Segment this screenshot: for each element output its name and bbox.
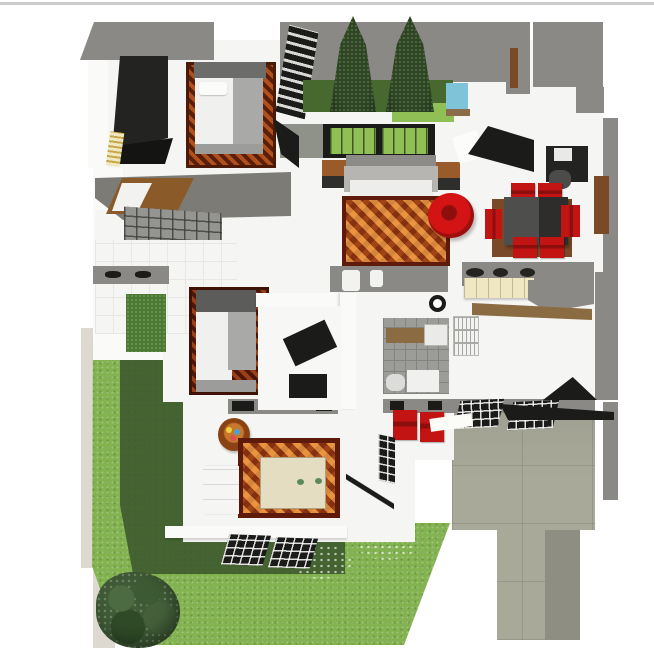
living-room-window-wall xyxy=(323,124,435,158)
north-east-roof-extension xyxy=(576,87,604,113)
washbasin xyxy=(407,370,439,392)
bed-blanket xyxy=(233,78,263,146)
wall-wood-trim xyxy=(510,48,518,88)
light-well-north-wall xyxy=(93,266,169,284)
round-red-armchair xyxy=(428,193,474,238)
stove-burner xyxy=(466,268,484,277)
toilet xyxy=(386,374,405,391)
south-window xyxy=(221,534,271,565)
bed-footboard xyxy=(195,144,263,154)
master-bed xyxy=(260,457,326,509)
dining-chair xyxy=(540,237,564,258)
dining-chair xyxy=(485,209,502,239)
bedroom-bench xyxy=(203,466,239,514)
bed-mattress xyxy=(196,312,232,386)
terrace-chair xyxy=(393,410,417,440)
page-top-border xyxy=(0,2,654,5)
flower-vase xyxy=(226,427,232,433)
bed-cushion xyxy=(315,478,322,484)
floor-plan-render xyxy=(0,0,654,656)
floor-drain-ring xyxy=(429,295,446,312)
kitchen-cabinet-front xyxy=(464,278,534,298)
north-east-roof-block xyxy=(533,22,603,87)
garden-shrub xyxy=(96,572,180,648)
wall-vent xyxy=(135,271,151,278)
pool-edge xyxy=(446,109,470,116)
side-entry-door xyxy=(594,176,609,234)
wall-vent xyxy=(105,271,121,278)
wall-window-slot xyxy=(390,401,404,410)
pillow xyxy=(199,82,227,95)
stove-burner xyxy=(493,268,508,277)
dining-chair xyxy=(513,237,537,258)
north-east-wall-block xyxy=(506,22,530,94)
bathroom-north-wall xyxy=(330,266,448,292)
wall-fixture xyxy=(370,270,383,287)
garden-view-window xyxy=(382,128,428,154)
small-pool xyxy=(446,83,468,112)
shower-tray xyxy=(424,324,448,346)
closet-wall-right xyxy=(340,293,356,409)
wall-window-slot xyxy=(428,401,442,410)
terrace-side-window xyxy=(378,434,395,484)
bed-headboard xyxy=(196,290,256,313)
bedroom1-west-wall xyxy=(88,45,108,168)
south-window xyxy=(268,537,318,568)
dining-chair xyxy=(561,205,580,237)
closet-floor-mat xyxy=(289,374,327,398)
closet-wall-top xyxy=(256,293,352,307)
light-well-planting xyxy=(126,294,166,352)
bed-headboard xyxy=(194,62,266,79)
wall-window-slot xyxy=(232,401,254,411)
garden-view-window xyxy=(330,128,376,154)
bed-cushion xyxy=(297,479,304,485)
bedroom1-back-wall xyxy=(80,22,214,60)
stove-burner xyxy=(520,268,535,277)
wall-fixture xyxy=(342,270,360,291)
bed-footboard xyxy=(196,380,256,392)
desk-monitor xyxy=(554,148,572,161)
stacked-appliances xyxy=(453,316,479,356)
bed-blanket xyxy=(228,312,256,370)
